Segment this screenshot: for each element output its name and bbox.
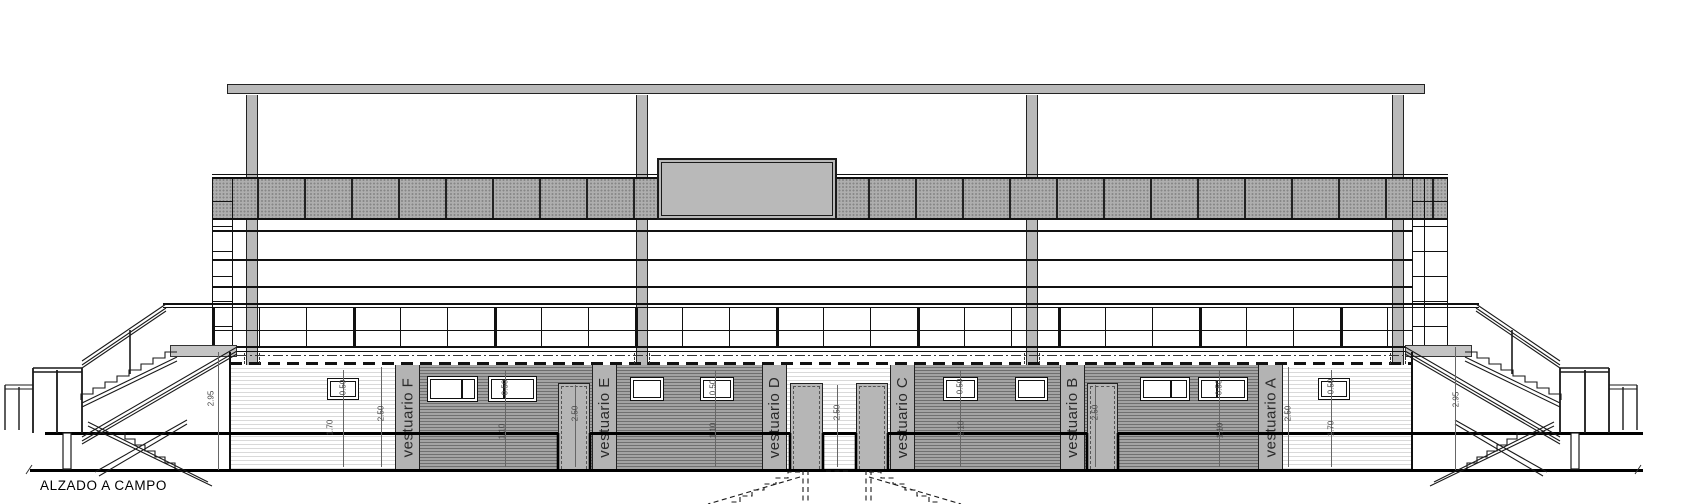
- dim-text: 1.10: [709, 414, 718, 448]
- dim-text: 2.50: [571, 397, 580, 431]
- drawing-title: ALZADO A CAMPO: [40, 478, 167, 493]
- dim-text: 2.95: [207, 382, 216, 416]
- dim-text: 2.95: [1452, 383, 1461, 417]
- dim-text: 0.50: [709, 371, 718, 405]
- ground-end-ticks: [26, 465, 1641, 474]
- dim-text: 1.10: [498, 415, 507, 449]
- dim-text: 2.50: [1091, 396, 1100, 430]
- dim-text: 1.10: [1216, 414, 1225, 448]
- dim-text: 1.10: [957, 412, 966, 446]
- dim-text: 0.50: [1327, 370, 1336, 404]
- dim-text: 2.50: [377, 397, 386, 431]
- dim-text: 1.70: [326, 411, 335, 445]
- stairs-left: [5, 304, 237, 486]
- dim-line: [218, 352, 219, 470]
- elevation-drawing: vestuario F vestuario E vestuario D vest…: [0, 0, 1686, 504]
- dim-text: 0.50: [956, 370, 965, 404]
- stairs-overlay: [0, 0, 1686, 504]
- stairs-right: [1405, 304, 1637, 486]
- dim-text: 2.50: [1284, 397, 1293, 431]
- door-jamb-heavy-lines: [558, 433, 1118, 470]
- dim-text: 1.70: [1327, 412, 1336, 446]
- dim-text: 0.50: [339, 371, 348, 405]
- dim-text: 0.50: [1215, 371, 1224, 405]
- dim-text: 2.50: [833, 396, 842, 430]
- basement-stairs: [708, 470, 961, 504]
- dim-text: 0.50: [501, 371, 510, 405]
